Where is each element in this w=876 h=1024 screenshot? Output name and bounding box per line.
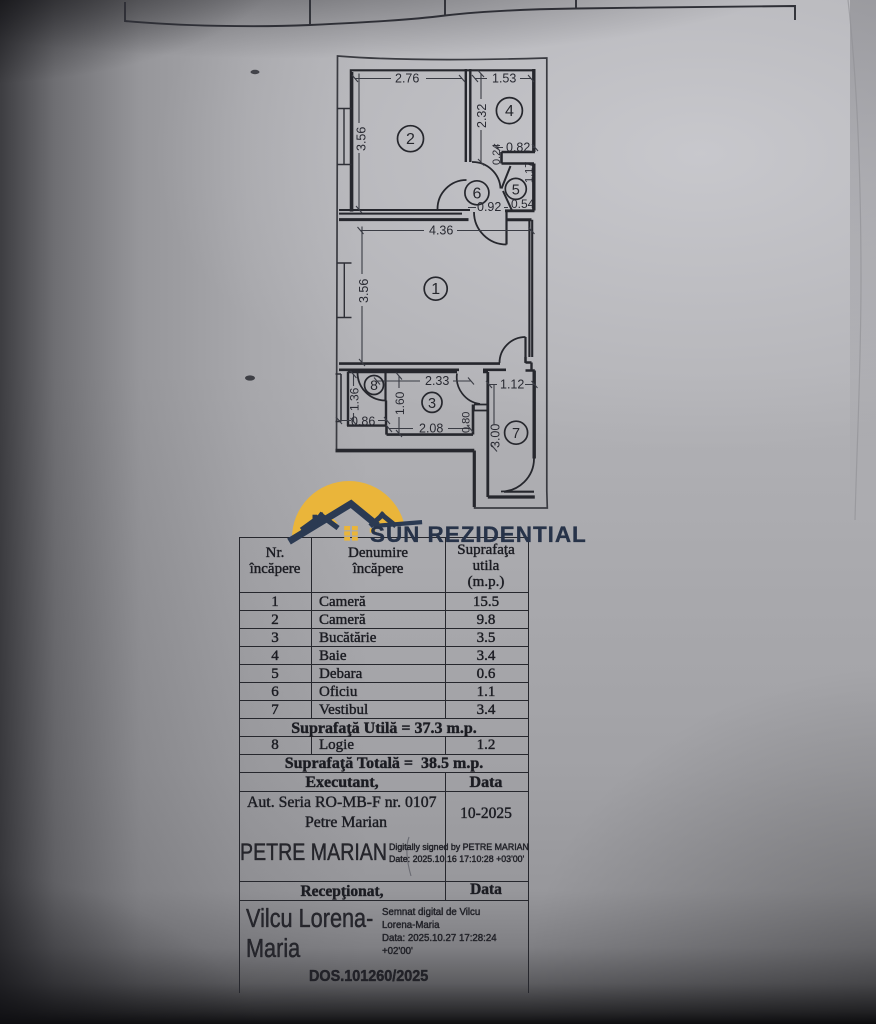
svg-text:1.60: 1.60 <box>393 391 407 415</box>
svg-text:8: 8 <box>370 377 378 393</box>
svg-text:1.53: 1.53 <box>492 72 516 86</box>
svg-text:1.12: 1.12 <box>500 378 524 392</box>
svg-text:3: 3 <box>428 396 436 412</box>
svg-text:7: 7 <box>512 426 520 442</box>
svg-text:1.36: 1.36 <box>348 387 362 411</box>
svg-text:1.17: 1.17 <box>524 162 536 183</box>
svg-text:2.32: 2.32 <box>475 104 489 128</box>
svg-text:2.33: 2.33 <box>425 374 449 388</box>
svg-text:2.08: 2.08 <box>419 422 443 436</box>
svg-text:3.56: 3.56 <box>355 127 369 151</box>
svg-text:2: 2 <box>406 131 415 148</box>
svg-text:0.82: 0.82 <box>506 141 530 155</box>
svg-text:0.54: 0.54 <box>511 197 535 211</box>
svg-text:2.76: 2.76 <box>395 72 419 86</box>
svg-text:4.36: 4.36 <box>429 224 453 238</box>
svg-text:0.24: 0.24 <box>491 144 503 165</box>
svg-text:4: 4 <box>505 103 514 120</box>
svg-text:3.56: 3.56 <box>357 279 371 303</box>
svg-text:0.80: 0.80 <box>461 412 473 433</box>
svg-text:1: 1 <box>431 281 440 298</box>
svg-text:5: 5 <box>512 182 520 198</box>
svg-text:0.92: 0.92 <box>477 200 501 214</box>
svg-text:3.00: 3.00 <box>489 424 503 448</box>
svg-text:0.86: 0.86 <box>351 415 375 429</box>
